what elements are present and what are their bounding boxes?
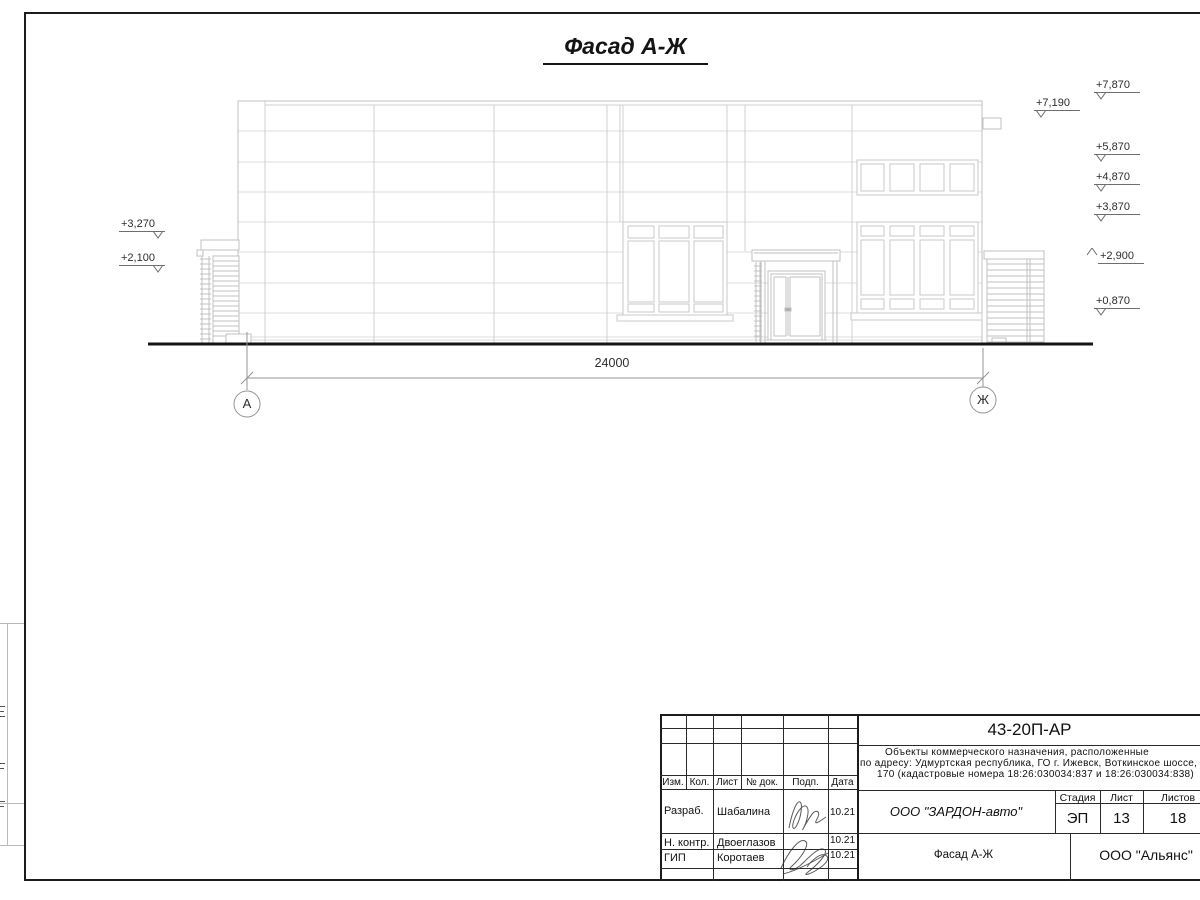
titleblock-line <box>660 714 662 881</box>
elevation-value: +3,270 <box>119 218 155 230</box>
company-name: ООО "ЗАРДОН-авто" <box>857 804 1055 819</box>
titleblock-line <box>783 714 784 881</box>
elevation-value: +3,870 <box>1094 201 1130 213</box>
sheet-number: 13 <box>1100 810 1143 827</box>
project-line: Объекты коммерческого назначения, распол… <box>885 747 1149 758</box>
elevation-mark: +2,100 <box>119 252 155 264</box>
col-doc: № док. <box>741 777 783 788</box>
elevation-mark: +3,870 <box>1094 201 1130 213</box>
org-name: ООО "Альянс" <box>1070 847 1200 863</box>
col-kol: Кол. <box>686 777 713 788</box>
project-line: по адресу: Удмуртская республика, ГО г. … <box>860 758 1197 769</box>
row-role: Н. контр. <box>664 837 709 849</box>
project-line: 170 (кадастровые номера 18:26:030034:837… <box>877 769 1194 780</box>
elevation-value: +2,900 <box>1098 250 1134 262</box>
drawing-name: Фасад А-Ж <box>857 849 1070 861</box>
row-role: ГИП <box>664 852 686 864</box>
elevation-mark: +0,870 <box>1094 295 1130 307</box>
titleblock-line <box>857 745 1200 746</box>
sheets-label: Листов <box>1143 792 1200 804</box>
sheets-total: 18 <box>1143 810 1200 827</box>
titleblock-line <box>713 714 714 881</box>
stage-value: ЭП <box>1055 810 1100 827</box>
elevation-value: +4,870 <box>1094 171 1130 183</box>
row-name: Двоеглазов <box>717 837 775 849</box>
row-name: Коротаев <box>717 852 765 864</box>
stage-label: Стадия <box>1055 792 1100 804</box>
row-date: 10.21 <box>830 850 855 861</box>
drawing-sheet: Фасад А-Ж <box>0 0 1200 900</box>
doc-number: 43-20П-АР <box>857 720 1200 740</box>
elevation-mark: +7,190 <box>1034 97 1070 109</box>
elevation-mark: +5,870 <box>1094 141 1130 153</box>
elevation-mark: +3,270 <box>119 218 155 230</box>
elevation-value: +2,100 <box>119 252 155 264</box>
titleblock-line <box>660 833 1200 834</box>
elevation-value: +7,190 <box>1034 97 1070 109</box>
elevation-mark: +4,870 <box>1094 171 1130 183</box>
signature-strokes <box>781 802 828 875</box>
row-date: 10.21 <box>830 835 855 846</box>
elevation-mark: +2,900 <box>1098 250 1134 262</box>
elevation-value: +7,870 <box>1094 79 1130 91</box>
row-name: Шабалина <box>717 806 770 818</box>
col-data: Дата <box>828 777 857 788</box>
row-date: 10.21 <box>830 807 855 818</box>
dimension-text: 24000 <box>582 356 642 370</box>
elevation-mark: +7,870 <box>1094 79 1130 91</box>
axis-bubble-right: Ж <box>970 392 996 407</box>
row-role: Разраб. <box>664 805 704 817</box>
titleblock-line <box>828 714 829 881</box>
elevation-value: +5,870 <box>1094 141 1130 153</box>
axis-bubble-left: А <box>234 396 260 411</box>
sheet-label: Лист <box>1100 792 1143 804</box>
col-list: Лист <box>713 777 741 788</box>
col-podp: Подп. <box>783 777 828 788</box>
titleblock-line <box>857 790 1200 791</box>
elevation-value: +0,870 <box>1094 295 1130 307</box>
col-izm: Изм. <box>660 777 686 788</box>
